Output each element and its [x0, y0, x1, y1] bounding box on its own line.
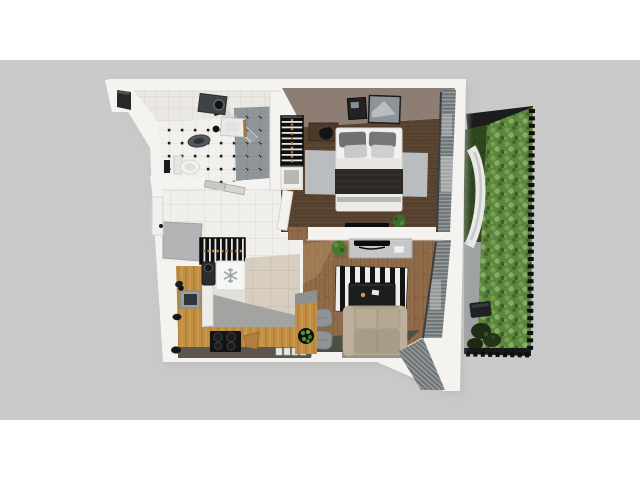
bedroom-window-frame-2: [442, 114, 452, 136]
balcony-fence-bottom: [466, 354, 530, 355]
sofa-arm-left: [343, 306, 354, 356]
flush-plate: [164, 160, 170, 173]
bedroom-living-wall: [306, 227, 444, 240]
coffee-machine: [202, 262, 215, 285]
shoe-cabinet: [281, 167, 302, 189]
sofa-cushion-left: [355, 308, 377, 329]
sofa-cushion-right: [378, 308, 400, 329]
balcony: [464, 106, 533, 356]
bedroom-window-frame: [441, 156, 453, 192]
wall-picture-large: [369, 95, 401, 123]
wall-picture-small: [347, 97, 366, 119]
living-plant: [331, 241, 347, 259]
balcony-storage-box: [469, 301, 492, 318]
tv-console: [349, 239, 412, 258]
screenshot-root: [0, 0, 640, 480]
tv: [354, 240, 390, 246]
hanger-closet-bedroom: [281, 116, 303, 166]
sofa: [342, 306, 408, 358]
washing-machine: [198, 93, 227, 114]
hanger-wardrobe-hallway: [200, 238, 245, 264]
double-bed: [335, 128, 403, 211]
pillow-light-left: [344, 144, 368, 158]
living-window-frame: [430, 280, 441, 310]
bathroom-wall-left: [150, 176, 205, 190]
hallway-bedroom-wall: [270, 88, 282, 190]
doorway-threshold: [288, 227, 308, 240]
entry-door-handle: [159, 224, 163, 228]
bedroom: [277, 88, 455, 232]
counter-item-2: [173, 314, 182, 320]
letterbox-top: [0, 0, 640, 60]
kitchen: [171, 254, 317, 358]
doormat: [163, 222, 202, 261]
letterbox-bottom: [0, 420, 640, 480]
cooktop: [210, 331, 241, 352]
nightstand: [309, 123, 338, 141]
floorplan-3d-render: [0, 0, 640, 480]
fridge: [216, 261, 245, 290]
pillow-light-right: [371, 144, 395, 158]
console-item: [394, 246, 404, 253]
counter-peninsula: [295, 290, 317, 354]
duvet: [337, 158, 401, 170]
bedroom-plant: [393, 215, 406, 228]
entry-door: [152, 197, 163, 235]
counter-item-3: [171, 346, 181, 353]
faucet-black: [213, 126, 220, 133]
table-candle: [361, 293, 365, 297]
bed-foot: [337, 194, 401, 211]
table-book: [372, 290, 380, 296]
vanity-sink: [220, 117, 246, 137]
